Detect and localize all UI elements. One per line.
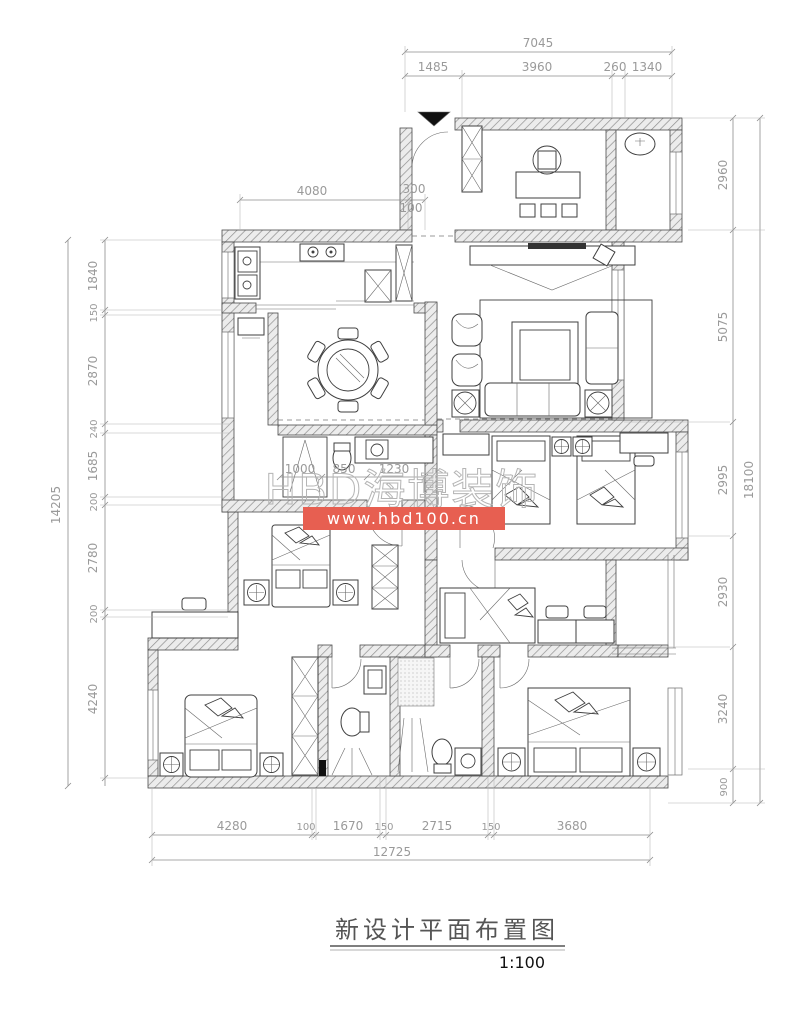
dim-label: 2960 <box>716 160 730 191</box>
armchair-icon <box>452 314 482 346</box>
dim-label: 2870 <box>86 356 100 387</box>
tv-icon <box>238 318 264 338</box>
bed-icon <box>185 695 257 777</box>
dim-label: 2780 <box>86 543 100 574</box>
wardrobe-icon <box>462 126 482 192</box>
nightstand-lamp-icon <box>552 437 571 456</box>
wash-basin-icon <box>625 133 655 155</box>
entry-door <box>412 132 448 168</box>
dim-label: 150 <box>481 822 500 833</box>
desk-icon <box>538 606 576 643</box>
wardrobe-icon <box>372 545 398 609</box>
dim-label: 100 <box>296 822 315 833</box>
dim-label: 4240 <box>86 684 100 715</box>
dim-label: 1670 <box>333 819 364 833</box>
bathroom-a <box>319 666 386 776</box>
desk-icon <box>152 598 238 638</box>
window-kitchen-left <box>222 252 234 298</box>
dim-label: 18100 <box>742 461 756 499</box>
dim-label: 4080 <box>297 184 328 198</box>
watermark-url: www.hbd100.cn <box>327 509 481 528</box>
bedroom-bottom-left <box>160 657 318 777</box>
dining-table-icon <box>307 328 390 412</box>
master-bedroom <box>498 688 660 776</box>
dim-label: 200 <box>89 604 100 623</box>
window-twinroom-right <box>676 452 688 538</box>
dim-label: 5075 <box>716 312 730 343</box>
dim-label: 300 <box>403 182 426 196</box>
dim-label: 3960 <box>522 60 553 74</box>
dim-label: 900 <box>719 777 730 796</box>
loveseat-icon <box>586 312 618 384</box>
watermark: HBD海博装饰 www.hbd100.cn <box>265 465 540 530</box>
nightstand-lamp-icon <box>244 580 269 605</box>
sofa-icon <box>485 383 580 416</box>
nightstand-lamp-icon <box>260 753 283 776</box>
bathB-door <box>450 657 479 688</box>
study-room-top <box>462 126 655 217</box>
dim-label: 1340 <box>632 60 663 74</box>
watermark-brand: HBD海博装饰 <box>265 465 540 514</box>
vanity-icon <box>355 437 433 463</box>
nightstand-lamp-icon <box>633 748 660 776</box>
dim-label: 2715 <box>422 819 453 833</box>
dim-label: 150 <box>374 822 393 833</box>
dim-label: 1485 <box>418 60 449 74</box>
vanity-icon <box>455 748 481 775</box>
dim-label: 260 <box>604 60 627 74</box>
window-bedroom3-left <box>148 690 158 760</box>
tv-icon <box>528 243 586 249</box>
shower-lines <box>398 718 428 772</box>
dim-label: 4280 <box>217 819 248 833</box>
nightstand-lamp-icon <box>160 753 183 776</box>
dim-label: 200 <box>89 492 100 511</box>
window-dining-left <box>222 332 234 418</box>
entry-arrow <box>418 112 450 126</box>
dim-label: 1685 <box>86 451 100 482</box>
dim-label: 2995 <box>716 465 730 496</box>
toilet-icon <box>341 708 369 736</box>
balcony-railing <box>612 555 676 654</box>
single-bed-icon <box>440 588 535 643</box>
shower-lines <box>332 748 372 775</box>
plant-table-icon <box>585 390 612 417</box>
window-topright-balcony <box>670 152 682 214</box>
floorplan-page: 7045 1485 3960 260 1340 4080 300 100 142… <box>0 0 800 1010</box>
study-door <box>462 560 495 592</box>
master-door <box>500 657 529 688</box>
drawing-scale: 1:100 <box>499 953 545 972</box>
shower-floor <box>398 658 434 706</box>
dim-label: 7045 <box>523 36 554 50</box>
sink-double-icon <box>235 247 260 299</box>
bathroom-b <box>398 658 481 775</box>
wardrobe-icon <box>292 657 318 775</box>
kitchen <box>234 244 414 302</box>
hob-icon <box>300 244 344 261</box>
dim-label: 2930 <box>716 577 730 608</box>
dim-label: 3680 <box>557 819 588 833</box>
bed-icon <box>272 525 330 607</box>
nightstand-lamp-icon <box>498 748 525 776</box>
dining-room <box>238 318 389 412</box>
dim-label: 1840 <box>86 261 100 292</box>
dim-label: 100 <box>400 201 423 215</box>
dim-label: 14205 <box>49 486 63 524</box>
dim-label: 150 <box>89 303 100 322</box>
chair-icon <box>533 146 561 174</box>
bathA-door <box>332 657 361 688</box>
tall-cabinet-icon <box>396 245 412 301</box>
title-block: 新设计平面布置图 1:100 <box>330 916 565 972</box>
sink-icon <box>364 666 386 694</box>
bed-icon <box>528 688 630 776</box>
desk <box>443 434 489 455</box>
bay-window-master <box>668 688 682 775</box>
dim-label: 240 <box>89 419 100 438</box>
floorplan-drawing: 7045 1485 3960 260 1340 4080 300 100 142… <box>0 0 800 1010</box>
fridge-icon <box>365 270 391 302</box>
armchair-icon <box>452 354 482 386</box>
bedroom-middle-left <box>152 525 398 638</box>
nightstand-lamp-icon <box>333 580 358 605</box>
toilet-icon <box>432 739 452 773</box>
dim-label: 12725 <box>373 845 411 859</box>
dim-label: 3240 <box>716 694 730 725</box>
plant-table-icon <box>452 390 479 417</box>
nightstand-lamp-icon <box>573 437 592 456</box>
guest-room <box>440 588 614 643</box>
drawing-title: 新设计平面布置图 <box>335 916 559 944</box>
coffee-table-icon <box>512 322 578 388</box>
